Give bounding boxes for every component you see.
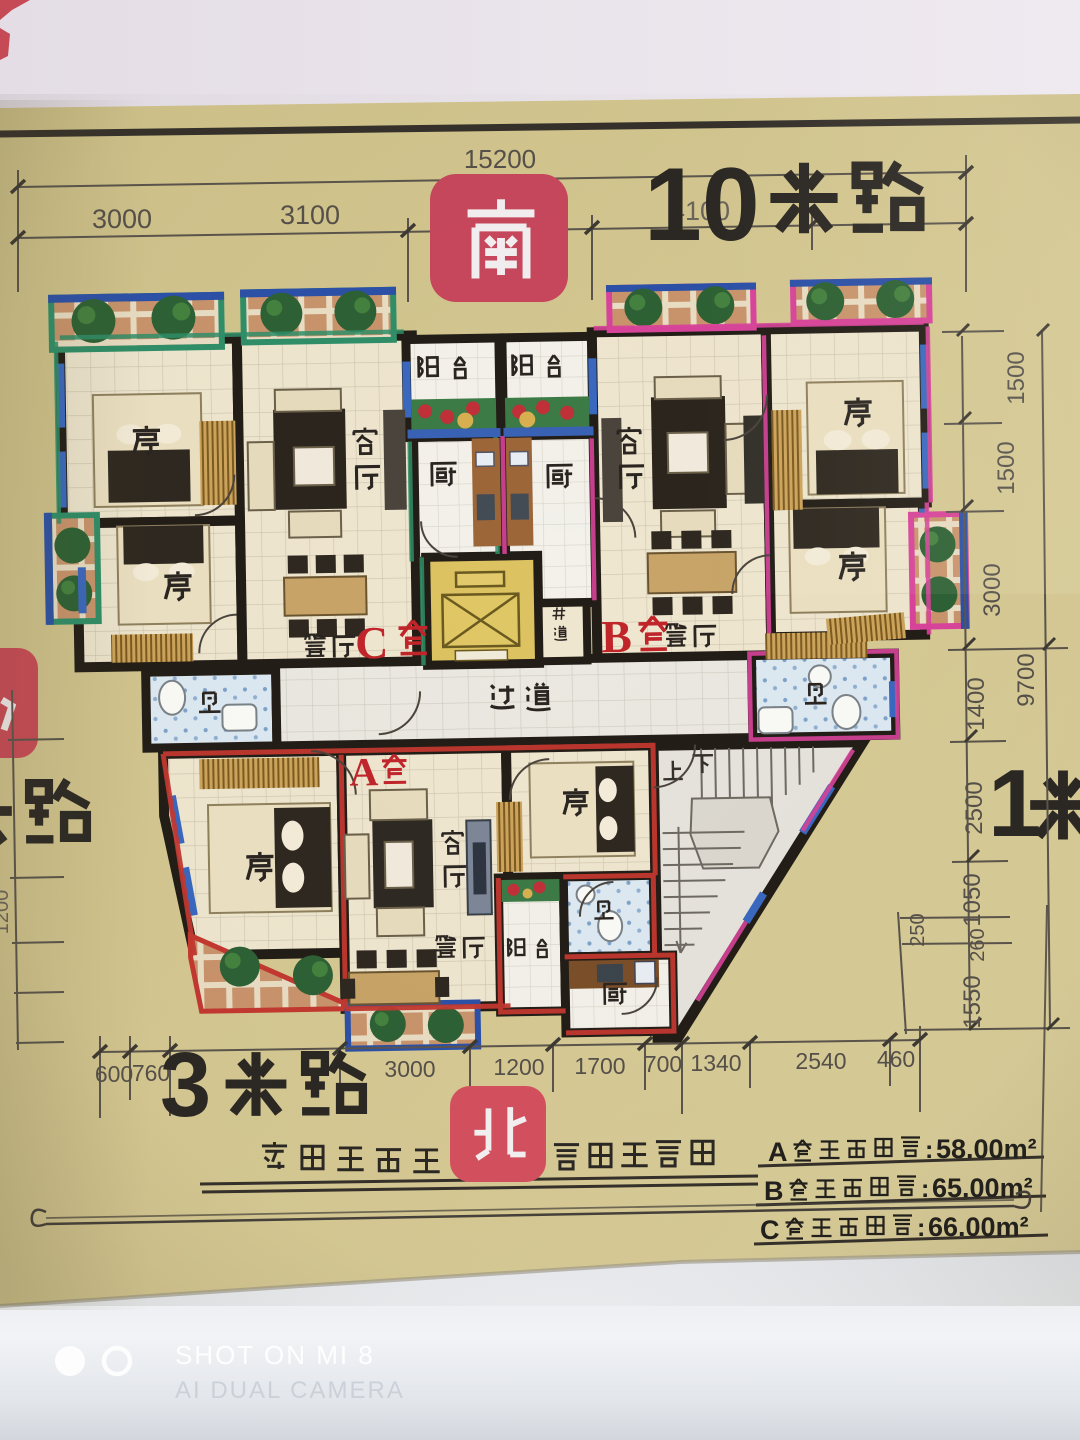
svg-text:AI DUAL CAMERA: AI DUAL CAMERA: [175, 1377, 405, 1404]
svg-text:SHOT ON MI 8: SHOT ON MI 8: [175, 1340, 375, 1370]
